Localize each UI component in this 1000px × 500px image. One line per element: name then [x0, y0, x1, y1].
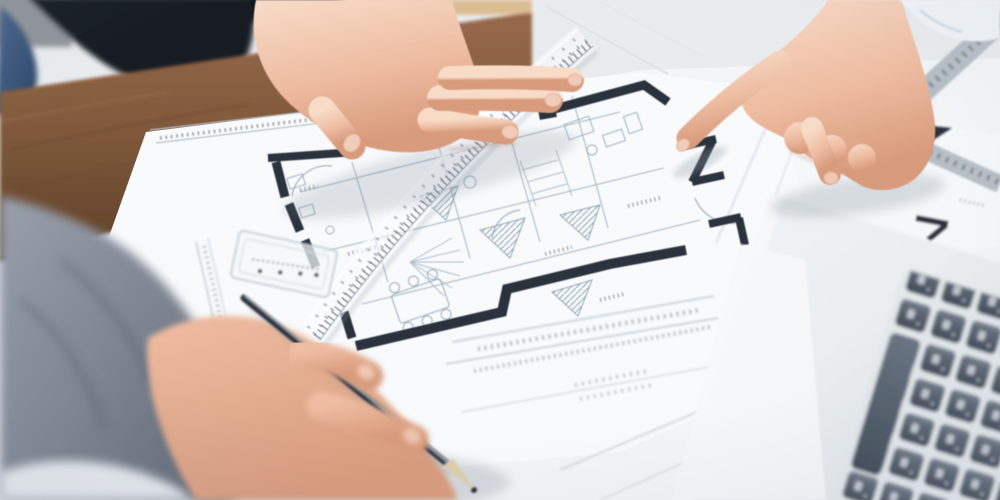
vignette [0, 0, 1000, 500]
photo-svg [0, 0, 1000, 500]
photo-architects-blueprint [0, 0, 1000, 500]
